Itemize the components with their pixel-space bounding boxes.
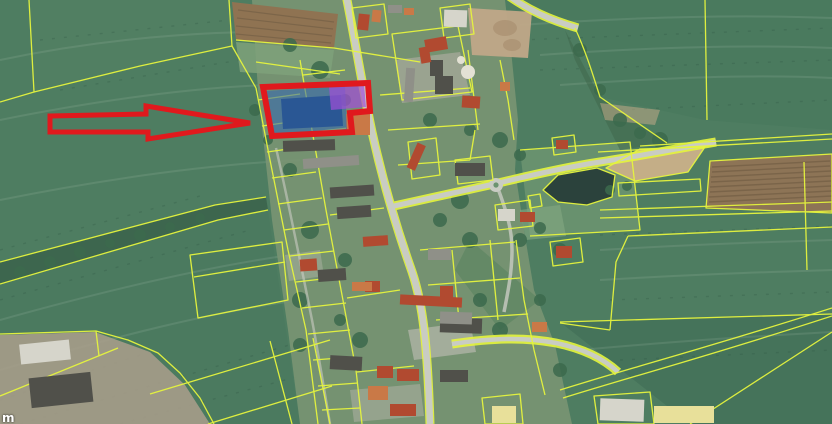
roundabout-center — [493, 182, 498, 187]
parcel-fill-purple — [329, 84, 366, 110]
map-canvas[interactable]: m — [0, 0, 832, 424]
silo-small — [457, 56, 465, 64]
silo — [461, 65, 475, 79]
scale-unit-label: m — [2, 412, 15, 424]
